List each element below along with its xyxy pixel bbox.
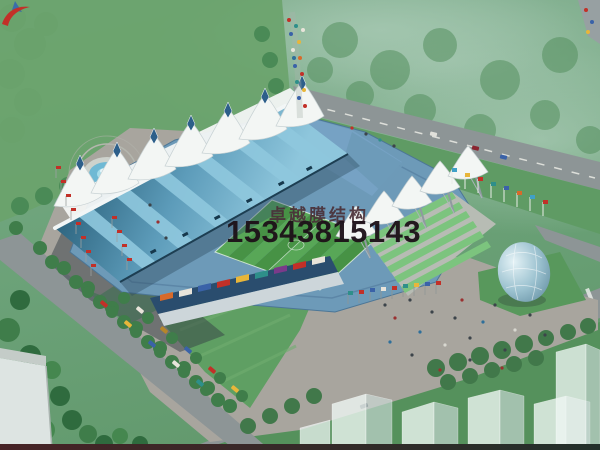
rendering-canvas: 卓越膜结构 15343815143 — [0, 0, 600, 450]
stadium-aerial-rendering — [0, 0, 600, 450]
southwest-building — [0, 348, 52, 450]
image-bottom-border — [0, 444, 600, 450]
